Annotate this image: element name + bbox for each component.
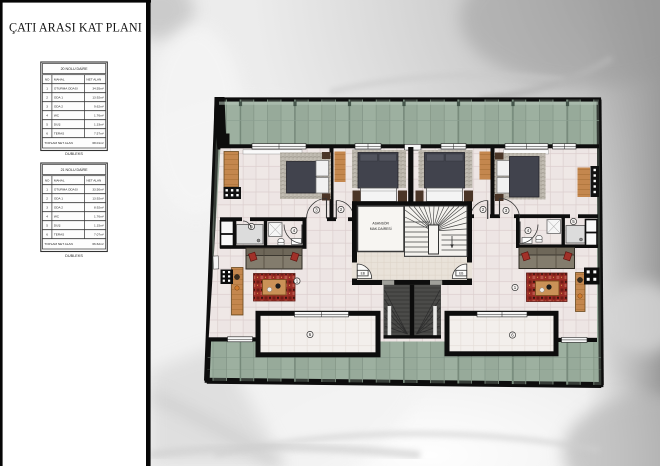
- svg-text:6: 6: [46, 132, 48, 136]
- svg-text:NET ALAN: NET ALAN: [86, 78, 101, 82]
- svg-text:DUŞ: DUŞ: [54, 224, 61, 228]
- svg-text:8.92m²: 8.92m²: [94, 206, 104, 210]
- svg-text:20 NOLU DAİRE: 20 NOLU DAİRE: [61, 66, 89, 71]
- svg-text:1.76m²: 1.76m²: [94, 215, 104, 219]
- svg-text:3: 3: [46, 105, 48, 109]
- svg-text:1: 1: [46, 87, 48, 91]
- svg-text:WC: WC: [54, 215, 60, 219]
- svg-text:13.92m²: 13.92m²: [92, 96, 103, 100]
- svg-text:6: 6: [46, 233, 48, 237]
- svg-text:2: 2: [46, 96, 48, 100]
- svg-text:EB: EB: [459, 272, 463, 276]
- svg-text:TERAS: TERAS: [54, 132, 64, 136]
- svg-text:OTURMA ODASI: OTURMA ODASI: [54, 188, 78, 192]
- svg-text:2: 2: [46, 197, 48, 201]
- svg-text:ÇATI ARASI KAT PLANI: ÇATI ARASI KAT PLANI: [9, 21, 142, 35]
- svg-text:7.07m²: 7.07m²: [94, 233, 104, 237]
- svg-text:DUŞ: DUŞ: [54, 123, 61, 127]
- svg-text:NO: NO: [45, 78, 50, 82]
- svg-text:5: 5: [46, 123, 48, 127]
- svg-text:ODA 2: ODA 2: [54, 105, 63, 109]
- svg-text:68.01m²: 68.01m²: [92, 141, 103, 145]
- svg-text:5: 5: [46, 224, 48, 228]
- svg-text:ASANSÖR: ASANSÖR: [372, 222, 389, 226]
- svg-text:TOPLAM NET ALAN: TOPLAM NET ALAN: [44, 141, 72, 145]
- svg-text:33.50m²: 33.50m²: [92, 188, 103, 192]
- svg-text:ODA 1: ODA 1: [54, 197, 63, 201]
- svg-text:13.92m²: 13.92m²: [92, 197, 103, 201]
- svg-text:4: 4: [46, 215, 48, 219]
- svg-text:EB: EB: [361, 272, 365, 276]
- svg-text:TOPLAM NET ALAN: TOPLAM NET ALAN: [44, 242, 72, 246]
- svg-text:66.62m²: 66.62m²: [92, 242, 103, 246]
- svg-text:ODA 2: ODA 2: [54, 206, 63, 210]
- svg-text:1.76m²: 1.76m²: [94, 114, 104, 118]
- svg-text:ODA 1: ODA 1: [54, 96, 63, 100]
- svg-text:9.62m²: 9.62m²: [94, 105, 104, 109]
- svg-text:MAHAL: MAHAL: [54, 78, 65, 82]
- svg-text:NET ALAN: NET ALAN: [86, 179, 101, 183]
- svg-text:WC: WC: [54, 114, 60, 118]
- svg-text:21 NOLU DAİRE: 21 NOLU DAİRE: [61, 167, 89, 172]
- svg-text:4: 4: [46, 114, 48, 118]
- svg-text:1.33m²: 1.33m²: [94, 123, 104, 127]
- svg-text:MAHAL: MAHAL: [54, 179, 65, 183]
- svg-text:NO: NO: [45, 179, 50, 183]
- svg-text:1.15m²: 1.15m²: [94, 224, 104, 228]
- svg-text:1: 1: [46, 188, 48, 192]
- svg-text:3: 3: [46, 206, 48, 210]
- svg-text:DUBLEKS: DUBLEKS: [65, 254, 83, 258]
- svg-text:TERAS: TERAS: [54, 233, 64, 237]
- svg-text:7.57m²: 7.57m²: [94, 132, 104, 136]
- svg-text:OTURMA ODASI: OTURMA ODASI: [54, 87, 78, 91]
- svg-text:34.55m²: 34.55m²: [92, 87, 103, 91]
- svg-text:MAK.DAİRESİ: MAK.DAİRESİ: [370, 226, 392, 231]
- svg-text:DUBLEKS: DUBLEKS: [65, 152, 83, 156]
